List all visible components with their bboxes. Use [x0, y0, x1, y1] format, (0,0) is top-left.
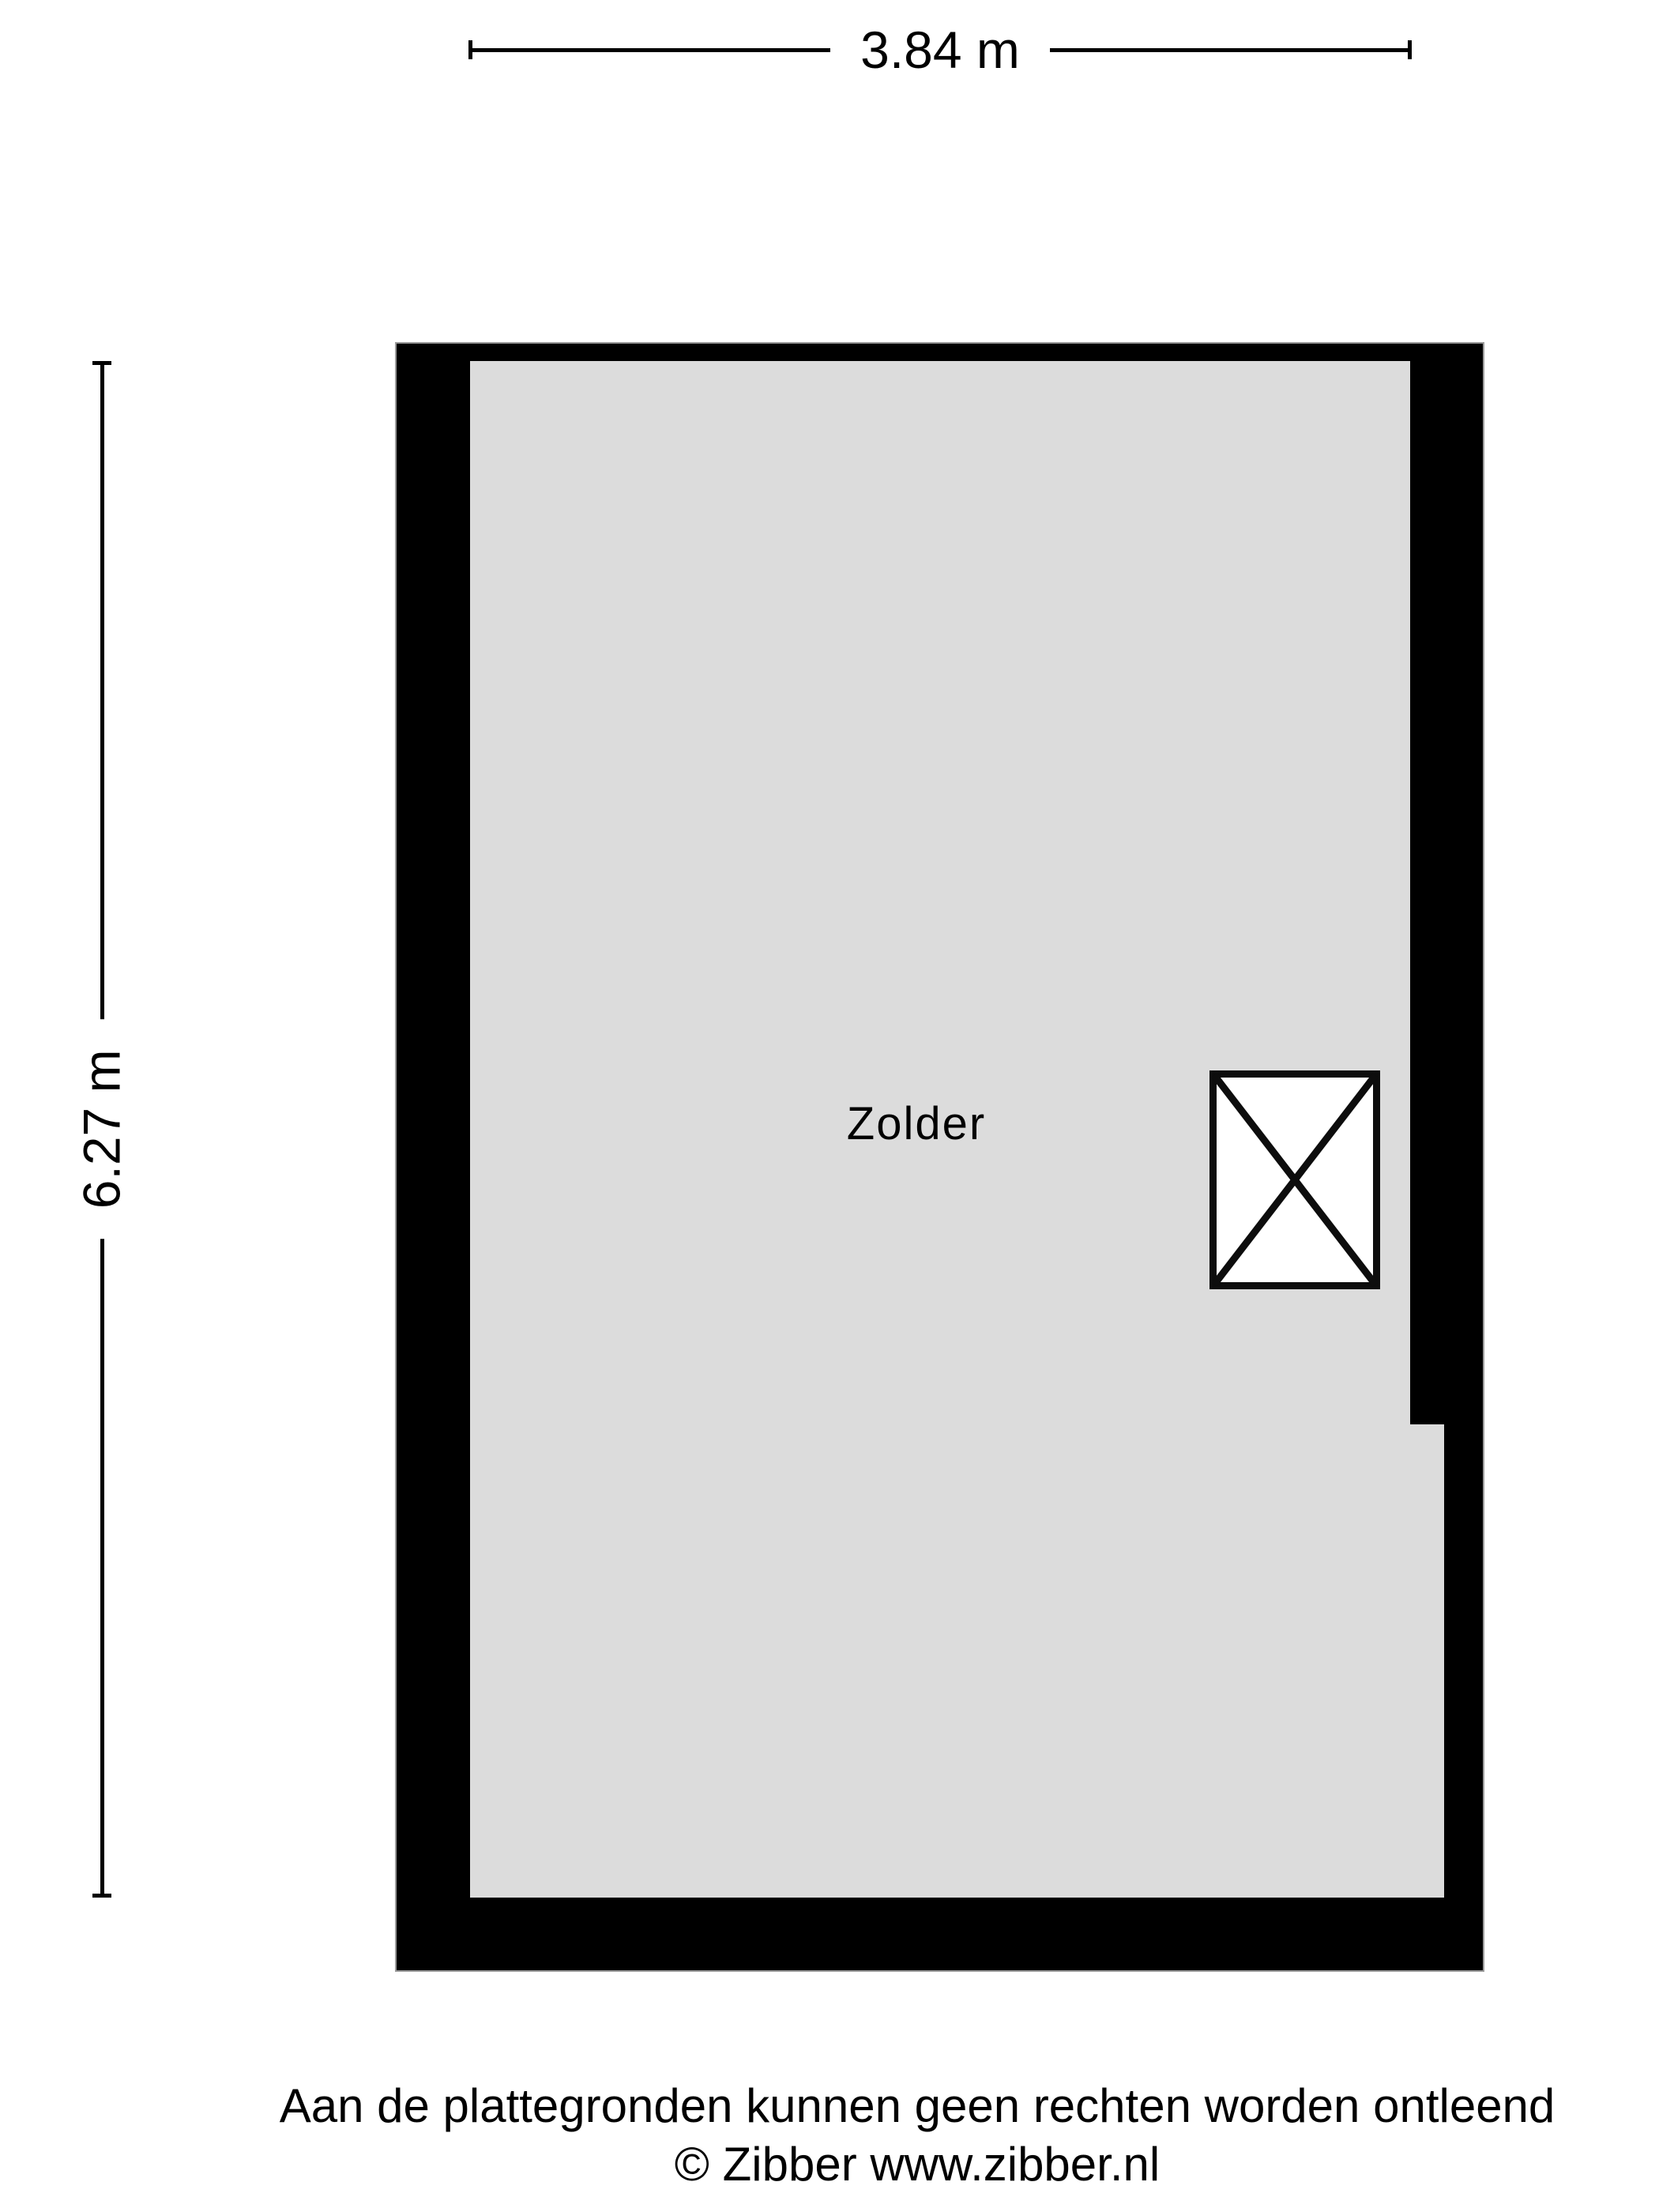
height-dimension: 6.27 m [92, 361, 111, 1898]
floorplan-page: 3.84 m 6.27 m Zolder Aan de plattegronde… [0, 0, 1659, 2212]
room-label: Zolder [847, 1101, 986, 1147]
width-dimension-label: 3.84 m [830, 21, 1050, 79]
stairwell-cross-icon [1209, 1070, 1380, 1289]
width-dimension-tick-right [1408, 40, 1412, 59]
room-floor-extension [1410, 1424, 1444, 1898]
height-dimension-tick-top [92, 361, 111, 365]
width-dimension-tick-left [468, 40, 472, 59]
height-dimension-label: 6.27 m [73, 1020, 131, 1240]
width-dimension: 3.84 m [468, 40, 1412, 59]
height-dimension-tick-bottom [92, 1894, 111, 1898]
footer-disclaimer: Aan de plattegronden kunnen geen rechten… [127, 2082, 1659, 2130]
footer: Aan de plattegronden kunnen geen rechten… [127, 2082, 1659, 2188]
stairwell-symbol [1209, 1070, 1380, 1289]
footer-copyright: © Zibber www.zibber.nl [127, 2141, 1659, 2188]
